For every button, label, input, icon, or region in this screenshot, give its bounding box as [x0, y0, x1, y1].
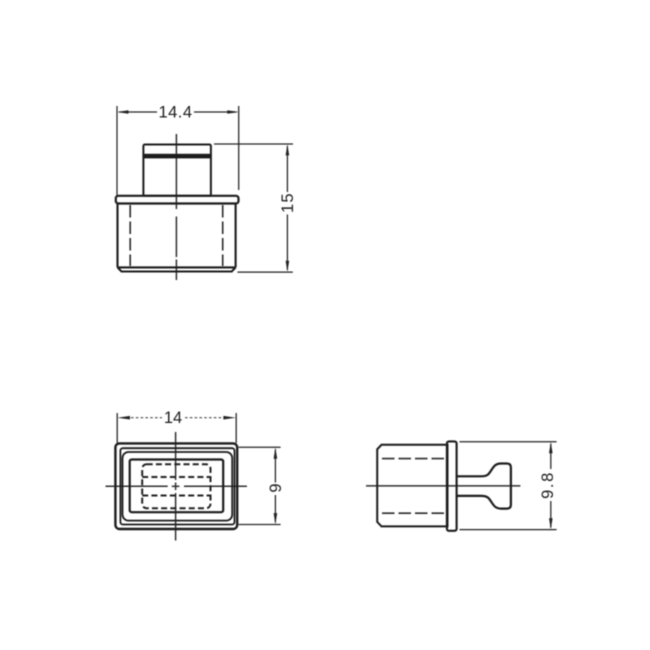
- svg-text:9.8: 9.8: [539, 471, 557, 499]
- svg-text:9: 9: [267, 483, 285, 492]
- svg-text:14.4: 14.4: [158, 104, 192, 122]
- svg-text:14: 14: [164, 409, 182, 427]
- svg-text:15: 15: [279, 192, 297, 213]
